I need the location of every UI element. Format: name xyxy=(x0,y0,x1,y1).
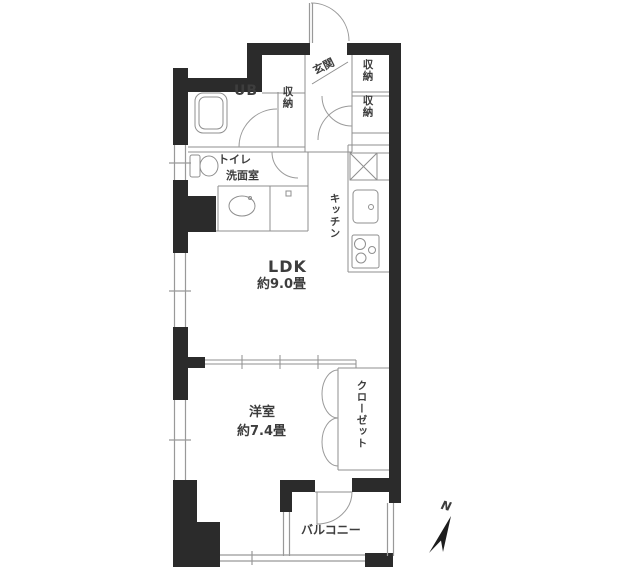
balcony-rail-bottom xyxy=(284,555,365,561)
window-toilet xyxy=(169,145,191,180)
window-bedroom-south xyxy=(220,551,284,565)
label-balcony: バルコニー xyxy=(301,524,361,537)
label-washroom: 洗面室 xyxy=(226,170,259,182)
washer-outlet xyxy=(286,191,291,196)
fridge-space-x xyxy=(350,153,377,180)
label-western-room: 洋室 xyxy=(249,406,275,420)
wall-pipe-shaft xyxy=(188,196,216,232)
wall-partition-stub xyxy=(188,357,205,368)
stove-burner-1 xyxy=(355,239,366,250)
label-right-storage-bottom: 収納 xyxy=(361,95,373,118)
label-western-room-size: 約7.4畳 xyxy=(237,425,286,439)
bathtub-inner xyxy=(199,97,223,129)
bathtub xyxy=(195,93,227,133)
label-ldk: LDK xyxy=(268,258,307,276)
label-right-storage-top: 収納 xyxy=(361,59,373,82)
window-bedroom-west xyxy=(169,400,191,480)
window-ldk xyxy=(169,253,191,327)
balcony-rail-left xyxy=(284,512,290,556)
kitchen-sink-drain xyxy=(369,205,374,210)
label-closet: クローゼット xyxy=(355,380,367,449)
unit-bath-door-arc xyxy=(239,109,277,147)
balcony-door-arc xyxy=(317,492,352,524)
floor-plan: UB 玄関 収納 収納 収納 トイレ 洗面室 キッチン LDK 約9.0畳 洋室… xyxy=(0,0,640,569)
floor-plan-drawing xyxy=(0,0,640,569)
wall-left-1 xyxy=(173,68,188,145)
label-toilet: トイレ xyxy=(218,154,251,166)
north-arrow-icon xyxy=(429,516,451,553)
toilet-tank xyxy=(190,155,200,177)
toilet-bowl xyxy=(200,156,218,176)
wall-south-closet xyxy=(352,478,401,492)
wall-left-2 xyxy=(173,180,188,253)
label-ldk-size: 約9.0畳 xyxy=(257,278,306,292)
closet-folding-door-arc-1 xyxy=(322,370,338,418)
entrance-door-leaf xyxy=(310,3,313,43)
walls xyxy=(173,43,401,567)
hall-storage-door-arc-top xyxy=(322,96,352,126)
closet-folding-door-arc-2 xyxy=(322,418,338,466)
hall-storage-door-arc-bottom xyxy=(318,106,352,140)
wall-balcony-left-v xyxy=(280,480,292,512)
label-unit-bath: UB xyxy=(234,84,258,99)
wall-balcony-corner xyxy=(365,553,393,567)
label-kitchen: キッチン xyxy=(328,193,340,239)
wall-right xyxy=(389,43,401,503)
label-hall-storage: 収納 xyxy=(281,86,293,109)
wall-left-bottom-horizontal xyxy=(173,522,220,567)
balcony-rail-right xyxy=(388,503,394,556)
entrance-door-arc xyxy=(311,3,349,41)
wall-left-3 xyxy=(173,327,188,400)
fixtures xyxy=(190,93,379,268)
stove-burner-2 xyxy=(356,253,366,263)
wall-top-entrance-left xyxy=(247,43,310,55)
stove-burner-3 xyxy=(369,247,376,254)
kitchen-sink xyxy=(353,190,378,223)
washroom-door-arc xyxy=(272,152,298,178)
